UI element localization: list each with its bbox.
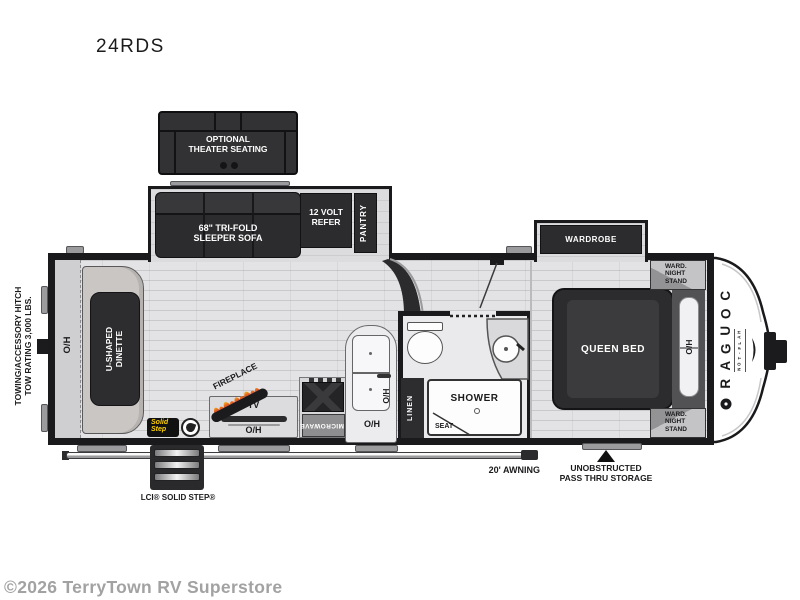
shower: SHOWER SEAT xyxy=(427,379,522,436)
nightstand-label: WARD. xyxy=(665,263,705,270)
bottom-wall-tab xyxy=(77,445,127,452)
bedroom-step-line xyxy=(530,261,532,438)
tv-overhead-label: O/H xyxy=(210,425,297,435)
awning-label: 20' AWNING xyxy=(440,465,540,475)
landing-gear-icon xyxy=(724,402,727,405)
cupholder-icon xyxy=(231,162,238,169)
bottom-wall-tab xyxy=(355,445,398,452)
badge-glyph xyxy=(185,422,197,434)
bath-vanity xyxy=(484,316,532,382)
bath-sink-drain xyxy=(504,347,508,351)
island-overhead-label: O/H xyxy=(381,381,391,411)
nightstand-label: NIGHT xyxy=(665,418,705,425)
optional-theater-seating: OPTIONAL THEATER SEATING xyxy=(158,111,298,175)
cooktop-icon xyxy=(302,382,344,412)
solid-step-logo-text: Step xyxy=(151,427,179,434)
microwave-label: MICROWAVE xyxy=(303,422,344,429)
page-title: 24RDS xyxy=(96,36,165,58)
accessory-hitch-stub xyxy=(37,339,48,354)
sofa-label: 68" TRI-FOLD SLEEPER SOFA xyxy=(156,223,300,244)
arrow-up-icon xyxy=(597,450,615,462)
nightstand-label: NIGHT xyxy=(665,270,705,277)
sofa-backrest xyxy=(156,193,300,215)
bottom-wall-tab xyxy=(218,445,290,452)
kingpin-hitch-icon xyxy=(774,340,787,363)
watermark: ©2026 TerryTown RV Superstore xyxy=(4,577,282,598)
fireplace-mantle xyxy=(210,387,270,422)
theater-seating-label: OPTIONAL THEATER SEATING xyxy=(160,135,296,155)
pass-thru-label: UNOBSTRUCTED PASS THRU STORAGE xyxy=(545,464,667,484)
sink-drain xyxy=(369,388,372,391)
brand-cougar: COUGAR xyxy=(716,289,736,390)
solid-step-label: LCI® SOLID STEP® xyxy=(128,493,228,502)
curved-cabinet-shape xyxy=(382,259,421,315)
step-tread xyxy=(154,449,200,457)
front-cap xyxy=(700,250,800,450)
queen-bed-label: QUEEN BED xyxy=(554,344,672,355)
wardrobe-label: WARDROBE xyxy=(541,235,641,244)
refrigerator: 12 VOLT REFER xyxy=(300,193,352,248)
step-tread xyxy=(154,461,200,469)
kitchen-faucet-icon xyxy=(377,374,391,378)
seat-label: SEAT xyxy=(435,423,453,430)
ward-night-stand-top: WARD. NIGHT STAND xyxy=(650,260,706,290)
wardrobe: WARDROBE xyxy=(540,225,642,254)
entry-steps xyxy=(150,445,204,490)
theater-divider xyxy=(214,113,216,130)
microwave: MICROWAVE xyxy=(302,414,345,437)
refer-label: REFER xyxy=(301,218,351,228)
step-tread xyxy=(154,473,200,481)
sleeper-sofa: 68" TRI-FOLD SLEEPER SOFA xyxy=(155,192,301,258)
door-swing-line xyxy=(480,263,497,308)
solid-step-logo: Solid Step xyxy=(147,418,179,437)
door-swing xyxy=(470,258,510,318)
cupholder-icon xyxy=(220,162,227,169)
nightstand-label: STAND xyxy=(665,278,705,285)
theater-divider xyxy=(240,113,242,130)
nightstand-label: WARD. xyxy=(665,411,705,418)
rear-bumper-tab xyxy=(41,404,48,432)
floorplan-page: 24RDS OPTIONAL THEATER SEATING TOWING/AC… xyxy=(0,0,800,600)
toilet-tank xyxy=(407,322,443,331)
shower-label: SHOWER xyxy=(429,393,520,404)
linen-label: LINEN xyxy=(407,383,417,433)
awning-end-cap xyxy=(521,450,538,460)
dinette-label: U-SHAPED DINETTE xyxy=(105,299,127,399)
queen-bed: QUEEN BED xyxy=(552,288,674,410)
shower-drain-icon xyxy=(474,408,480,414)
pass-thru-door-tab xyxy=(582,443,642,450)
sink-drain xyxy=(369,352,372,355)
rear-bumper-tab xyxy=(41,286,48,314)
rear-overhead-label: O/H xyxy=(62,330,74,360)
kitchen-overhead-label: O/H xyxy=(354,419,390,429)
bedroom-overhead-label: O/H xyxy=(684,332,694,362)
nightstand-label: STAND xyxy=(665,426,705,433)
ward-night-stand-bottom: WARD. NIGHT STAND xyxy=(650,408,706,438)
brand-half-ton: HALF-TON xyxy=(734,329,746,372)
toilet-icon xyxy=(407,331,443,364)
awning-rail xyxy=(66,452,524,459)
solid-step-badge-icon xyxy=(181,418,200,437)
theater-back-divider xyxy=(160,130,296,132)
pantry-label: PANTRY xyxy=(359,197,371,249)
